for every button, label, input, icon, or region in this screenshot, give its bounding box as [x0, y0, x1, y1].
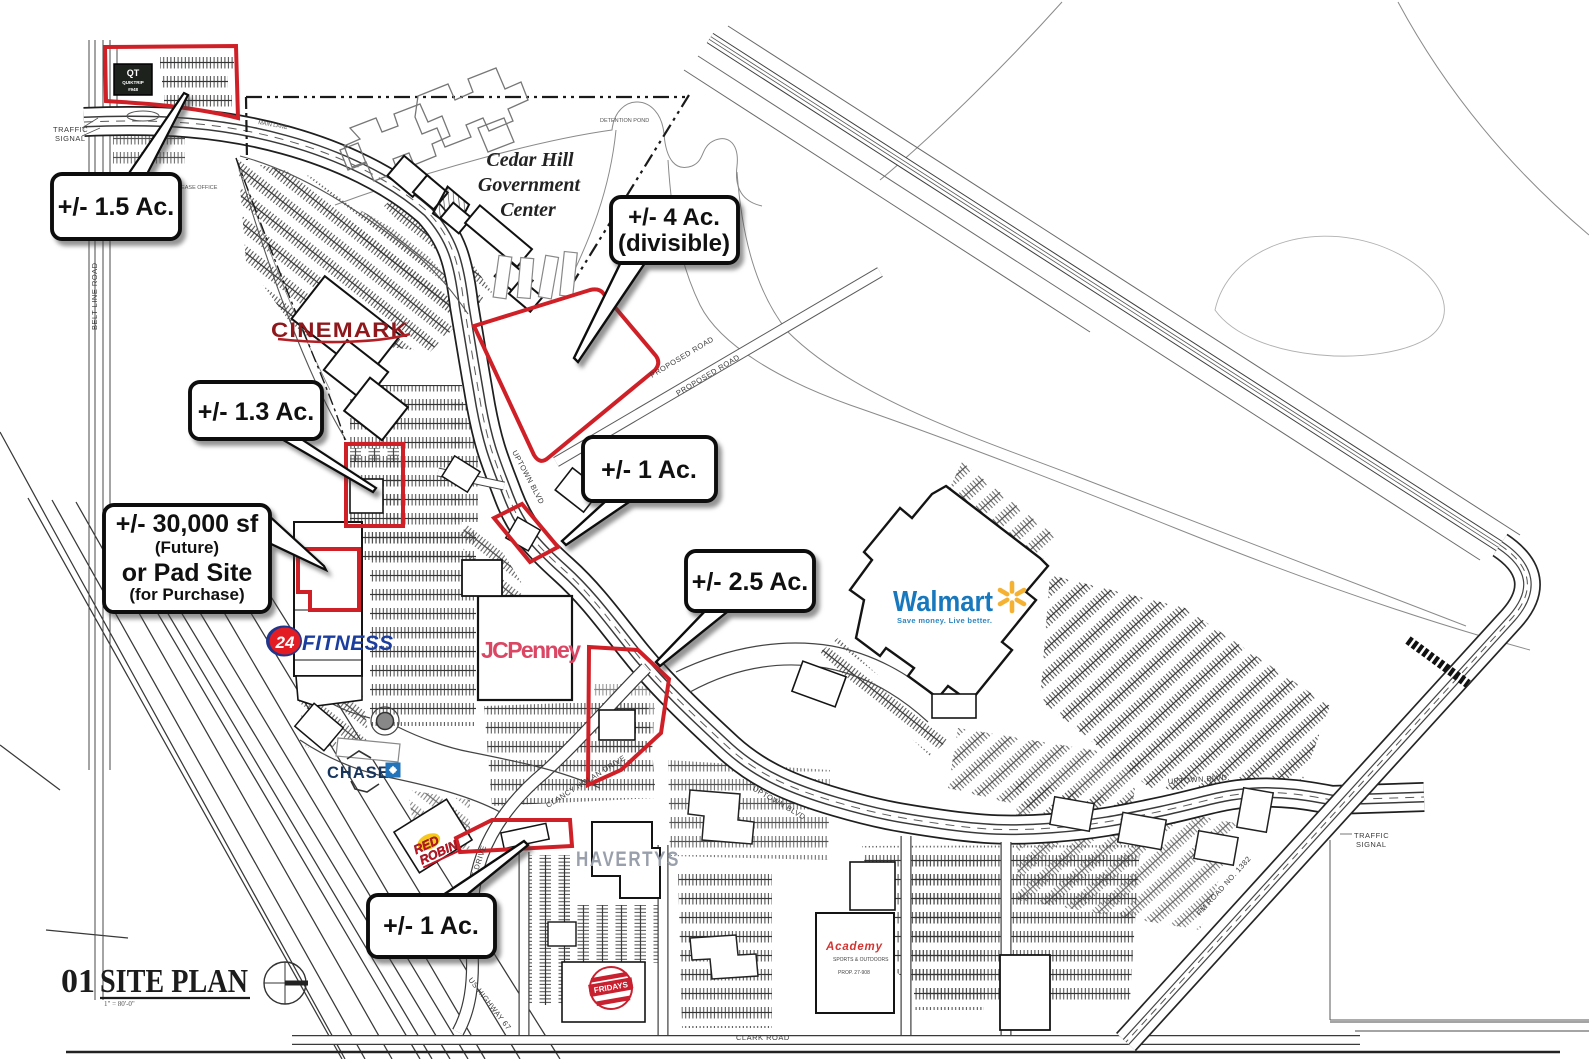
svg-text:(divisible): (divisible): [618, 230, 730, 257]
svg-text:1" = 80'-0": 1" = 80'-0": [104, 1000, 135, 1008]
svg-text:Save money. Live better.: Save money. Live better.: [897, 616, 992, 625]
svg-text:BELT LINE ROAD: BELT LINE ROAD: [90, 262, 99, 330]
svg-text:SITE PLAN: SITE PLAN: [100, 963, 248, 1000]
svg-text:TRAFFIC: TRAFFIC: [1354, 831, 1389, 840]
svg-text:+/- 1 Ac.: +/- 1 Ac.: [601, 456, 697, 484]
svg-text:Walmart: Walmart: [893, 586, 993, 618]
svg-text:LEASE OFFICE: LEASE OFFICE: [178, 185, 218, 191]
svg-text:Academy: Academy: [825, 941, 883, 953]
svg-text:or Pad Site: or Pad Site: [122, 559, 253, 587]
svg-text:DETENTION POND: DETENTION POND: [600, 118, 649, 124]
svg-text:SPORTS & OUTDOORS: SPORTS & OUTDOORS: [833, 957, 889, 963]
svg-text:#948: #948: [128, 87, 139, 92]
svg-text:24: 24: [275, 633, 295, 652]
svg-text:(for Purchase): (for Purchase): [129, 585, 244, 604]
svg-text:+/- 2.5 Ac.: +/- 2.5 Ac.: [692, 568, 809, 596]
svg-text:Cedar Hill: Cedar Hill: [486, 149, 574, 171]
svg-text:CLARK ROAD: CLARK ROAD: [736, 1033, 790, 1042]
svg-text:JCPenney: JCPenney: [481, 637, 581, 663]
svg-text:PROP. 27-908: PROP. 27-908: [838, 970, 870, 976]
svg-text:+/- 4 Ac.: +/- 4 Ac.: [628, 204, 720, 231]
svg-text:01: 01: [61, 963, 95, 1000]
svg-text:QUIKTRIP: QUIKTRIP: [122, 80, 144, 85]
svg-text:Government: Government: [478, 174, 582, 196]
svg-text:TRAFFIC: TRAFFIC: [53, 125, 88, 134]
svg-text:QT: QT: [127, 68, 140, 78]
svg-text:+/- 1.3 Ac.: +/- 1.3 Ac.: [198, 398, 315, 426]
svg-text:+/- 30,000 sf: +/- 30,000 sf: [116, 510, 259, 538]
svg-text:SIGNAL: SIGNAL: [55, 134, 86, 143]
svg-text:SIGNAL: SIGNAL: [1356, 840, 1387, 849]
svg-text:+/- 1 Ac.: +/- 1 Ac.: [383, 912, 479, 940]
svg-text:+/- 1.5 Ac.: +/- 1.5 Ac.: [58, 193, 175, 221]
svg-text:Center: Center: [500, 199, 556, 221]
svg-text:(Future): (Future): [155, 538, 219, 557]
svg-text:FITNESS: FITNESS: [302, 632, 394, 655]
svg-text:HAVERTYS: HAVERTYS: [576, 848, 680, 871]
svg-text:CHASE: CHASE: [327, 764, 390, 782]
